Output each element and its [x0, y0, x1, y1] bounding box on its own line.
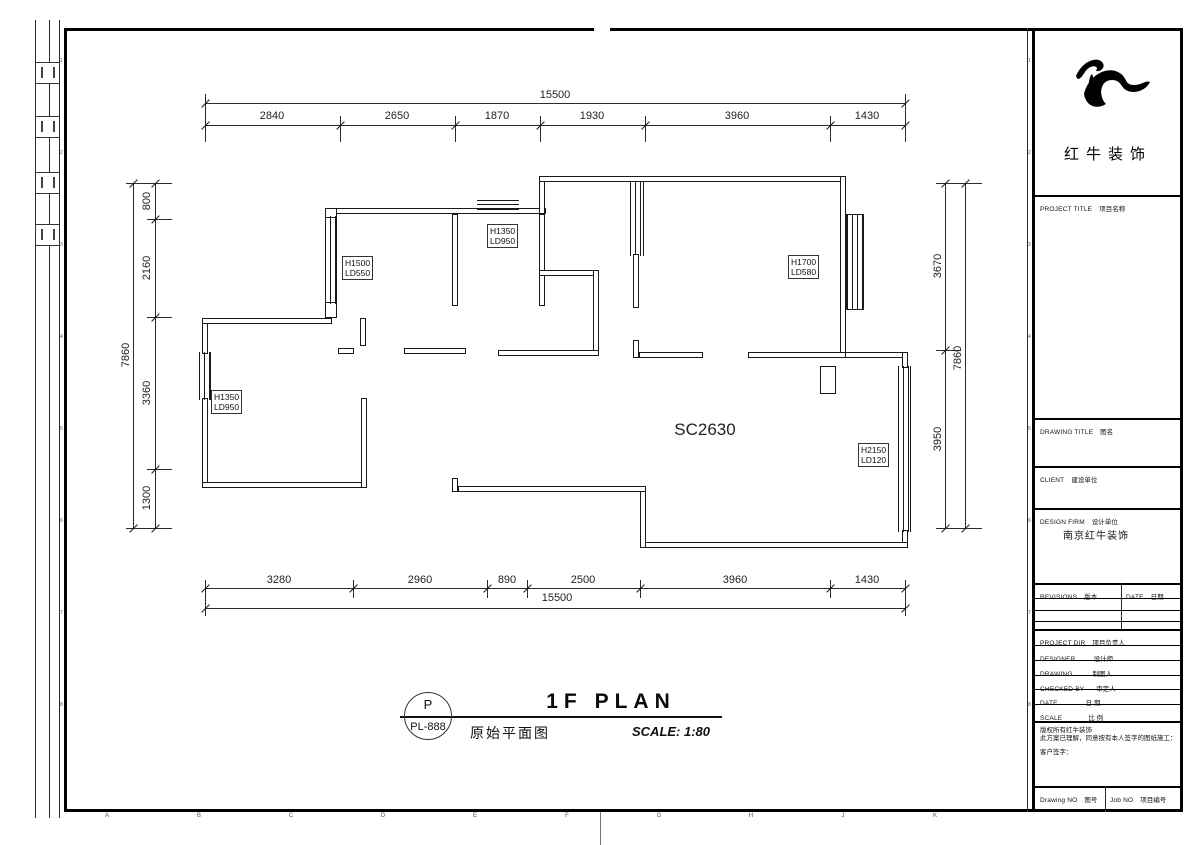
wall-segment	[639, 352, 703, 358]
titleblock-line	[1035, 418, 1180, 420]
grid-number: 1	[1028, 58, 1031, 64]
window-label-line: H1350	[214, 392, 239, 402]
field-label-zh: 设计师	[1094, 656, 1114, 663]
field-label-en: DRAWING TITLE	[1040, 429, 1093, 436]
strip-glyph	[41, 177, 43, 188]
field-label-en: DESIGN FIRM	[1040, 519, 1085, 526]
field-label-en: PROJECT TITLE	[1040, 206, 1092, 213]
bubble-letter: P	[404, 697, 452, 712]
grid-letter: A	[103, 813, 111, 819]
dim-top-seg: 2840	[232, 110, 312, 122]
field-label-en: Drawing NO	[1040, 797, 1077, 804]
field-label-en: REVISIONS	[1040, 594, 1077, 601]
column	[820, 366, 836, 394]
window-label-line: H1500	[345, 258, 370, 268]
field-label-zh: 日 期	[1086, 700, 1101, 707]
grid-letter: B	[195, 813, 203, 819]
window-label-line: H2150	[861, 445, 886, 455]
window-label: H1700 LD580	[788, 255, 819, 279]
dimension-line	[205, 103, 905, 104]
titleblock-line	[1035, 786, 1180, 788]
grid-letter: E	[471, 813, 479, 819]
strip-glyph	[53, 121, 55, 132]
sheet-title-zh: 原始平面图	[470, 723, 550, 743]
window-label-line: LD580	[791, 267, 816, 277]
binding-strip-line	[49, 20, 50, 818]
titleblock-line	[1121, 583, 1122, 629]
grid-number: 8	[60, 702, 63, 708]
drawing-sheet: A B C D E F G H J K 1 2 3 4 5 6 7 8 1 2 …	[0, 0, 1200, 845]
field-scale: SCALE比 例	[1040, 707, 1103, 725]
extension-line	[205, 580, 206, 616]
dim-bottom-seg: 1430	[827, 574, 907, 586]
titleblock-line	[1035, 466, 1180, 468]
titleblock-line	[1035, 508, 1180, 510]
dim-bottom-seg: 3280	[239, 574, 319, 586]
titleblock-line	[1035, 583, 1180, 585]
field-drawing-title: DRAWING TITLE图名	[1040, 421, 1113, 439]
strip-glyph	[53, 229, 55, 240]
binding-strip-cell	[35, 172, 60, 194]
dim-left-seg: 800	[141, 166, 153, 236]
window-label: H1350 LD950	[487, 224, 518, 248]
binding-strip-cell	[35, 116, 60, 138]
wall-segment	[633, 254, 639, 308]
dim-top-seg: 3960	[697, 110, 777, 122]
grid-letter: H	[747, 813, 755, 819]
binding-strip-line	[59, 20, 60, 818]
titleblock-line	[1035, 621, 1180, 622]
wall-segment	[539, 270, 599, 276]
grid-number: 7	[1028, 610, 1031, 616]
wall-segment	[640, 542, 908, 548]
wall-segment	[202, 398, 208, 488]
wall-segment	[498, 350, 599, 356]
dim-top-seg: 1430	[827, 110, 907, 122]
window-label: H1500 LD550	[342, 256, 373, 280]
dim-bottom-seg: 2960	[380, 574, 460, 586]
grid-number: 5	[1028, 426, 1031, 432]
room-code-label: SC2630	[650, 420, 760, 440]
grid-number: 5	[60, 426, 63, 432]
window-hatch	[630, 182, 644, 256]
strip-glyph	[41, 67, 43, 78]
strip-glyph	[41, 229, 43, 240]
field-client: CLIENT建设单位	[1040, 469, 1097, 487]
dim-bottom-seg: 3960	[695, 574, 775, 586]
dim-left-seg: 3360	[141, 358, 153, 428]
dim-right-total: 7860	[952, 323, 964, 393]
extension-line	[645, 116, 646, 142]
grid-number: 2	[1028, 150, 1031, 156]
extension-line	[455, 116, 456, 142]
fold-mark-gap	[594, 26, 610, 33]
dim-top-seg: 2650	[357, 110, 437, 122]
field-label-en: DATE	[1126, 594, 1144, 601]
field-job-no: Job NO项目编号	[1110, 789, 1166, 807]
grid-letter: G	[655, 813, 663, 819]
field-label-zh: 项目名称	[1099, 206, 1125, 213]
dim-top-seg: 1930	[552, 110, 632, 122]
field-label-en: CLIENT	[1040, 477, 1064, 484]
grid-letter: D	[379, 813, 387, 819]
grid-number: 4	[1028, 334, 1031, 340]
binding-strip-cell	[35, 224, 60, 246]
titleblock-line	[1035, 629, 1180, 631]
dimension-line	[205, 125, 905, 126]
dim-left-seg: 2160	[141, 233, 153, 303]
field-label-zh: 建设单位	[1071, 477, 1097, 484]
grid-number: 6	[60, 518, 63, 524]
titleblock-border	[1032, 28, 1035, 812]
window-label-line: LD120	[861, 455, 886, 465]
grid-number: 3	[1028, 242, 1031, 248]
wall-segment	[539, 176, 846, 182]
redbull-logo-icon	[1062, 52, 1154, 132]
dim-bottom-total: 15500	[517, 592, 597, 604]
dim-right-seg: 3670	[932, 231, 944, 301]
titleblock-line	[1035, 195, 1180, 197]
grid-letter: C	[287, 813, 295, 819]
wall-segment	[202, 482, 367, 488]
extension-line	[147, 317, 172, 318]
wall-segment	[360, 318, 366, 346]
wall-segment	[361, 398, 367, 488]
dim-left-total: 7860	[120, 320, 132, 390]
wall-segment	[452, 214, 458, 306]
grid-number: 1	[60, 58, 63, 64]
field-label-zh: 制图人	[1093, 671, 1113, 678]
dimension-line	[965, 183, 966, 528]
field-rev-date: DATE日期	[1126, 586, 1164, 604]
dimension-line	[155, 183, 156, 528]
field-label-zh: 设计单位	[1092, 519, 1118, 526]
field-label-en: SCALE	[1040, 715, 1062, 722]
field-label-en: Job NO	[1110, 797, 1133, 804]
field-label-zh: 项目编号	[1140, 797, 1166, 804]
window-label: H1350 LD950	[211, 390, 242, 414]
field-revisions: REVISIONS版本	[1040, 586, 1097, 604]
binding-strip-line	[35, 20, 36, 818]
client-signature-label: 客户签字：	[1040, 746, 1073, 756]
wall-segment	[452, 478, 458, 492]
field-label-zh: 比 例	[1088, 715, 1103, 722]
wall-segment	[404, 348, 466, 354]
field-project-title: PROJECT TITLE项目名称	[1040, 198, 1125, 216]
strip-glyph	[53, 67, 55, 78]
dimension-line	[945, 183, 946, 528]
wall-segment	[640, 486, 646, 548]
field-label-en: DRAWING	[1040, 671, 1073, 678]
dim-top-seg: 1870	[457, 110, 537, 122]
wall-segment	[840, 352, 908, 358]
wall-segment	[202, 318, 332, 324]
grid-number: 8	[1028, 702, 1031, 708]
dim-bottom-seg: 890	[467, 574, 547, 586]
dim-top-total: 15500	[515, 89, 595, 101]
dim-right-seg: 3950	[932, 404, 944, 474]
grid-number: 6	[1028, 518, 1031, 524]
bubble-code: PL-888	[404, 721, 452, 733]
fold-mark-line	[600, 812, 601, 845]
field-label-zh: 项目负责人	[1092, 640, 1125, 647]
titleblock-line	[1105, 786, 1106, 812]
dimension-line	[205, 588, 905, 589]
field-label-zh: 版本	[1084, 594, 1097, 601]
window-hatch	[325, 216, 337, 304]
brand-name: 红牛装饰	[1036, 143, 1180, 164]
dimension-line	[133, 183, 134, 528]
wall-segment	[593, 270, 599, 356]
sheet-title-en: 1F PLAN	[500, 690, 722, 714]
window-hatch	[199, 352, 211, 400]
strip-glyph	[53, 177, 55, 188]
design-firm-value: 南京红牛装饰	[1036, 527, 1156, 542]
wall-segment	[539, 214, 545, 306]
window-label: H2150 LD120	[858, 443, 889, 467]
window-label-line: LD950	[490, 236, 515, 246]
grid-number: 2	[60, 150, 63, 156]
field-label-en: PROJECT DIR	[1040, 640, 1085, 647]
grid-letter: J	[839, 813, 847, 819]
dim-bottom-seg: 2500	[543, 574, 623, 586]
window-hatch	[477, 200, 519, 210]
field-label-zh: 图名	[1100, 429, 1113, 436]
field-label-zh: 日期	[1151, 594, 1164, 601]
grid-number: 4	[60, 334, 63, 340]
window-label-line: H1700	[791, 257, 816, 267]
extension-line	[540, 116, 541, 142]
wall-segment	[458, 486, 646, 492]
field-drawing-no: Drawing NO图号	[1040, 789, 1097, 807]
titleblock-line	[1035, 610, 1180, 611]
window-hatch	[898, 366, 911, 532]
grid-letter: K	[931, 813, 939, 819]
dimension-line	[205, 608, 905, 609]
window-hatch	[846, 214, 864, 310]
binding-strip-cell	[35, 62, 60, 84]
window-label-line: LD550	[345, 268, 370, 278]
field-label-zh: 图号	[1084, 797, 1097, 804]
wall-segment	[325, 302, 337, 318]
grid-letter: F	[563, 813, 571, 819]
grid-number: 3	[60, 242, 63, 248]
extension-line	[340, 116, 341, 142]
field-label-en: DATE	[1040, 700, 1058, 707]
window-label-line: LD950	[214, 402, 239, 412]
wall-segment	[338, 348, 354, 354]
window-label-line: H1350	[490, 226, 515, 236]
strip-glyph	[41, 121, 43, 132]
sheet-scale: SCALE: 1:80	[632, 724, 710, 739]
wall-segment	[748, 352, 846, 358]
field-label-en: DESIGNER	[1040, 656, 1076, 663]
dim-left-seg: 1300	[141, 463, 153, 533]
grid-number: 7	[60, 610, 63, 616]
construction-note: 此方案已理解，同意按有本人签字的图纸施工：	[1040, 732, 1177, 742]
titleblock-border	[1027, 28, 1028, 812]
